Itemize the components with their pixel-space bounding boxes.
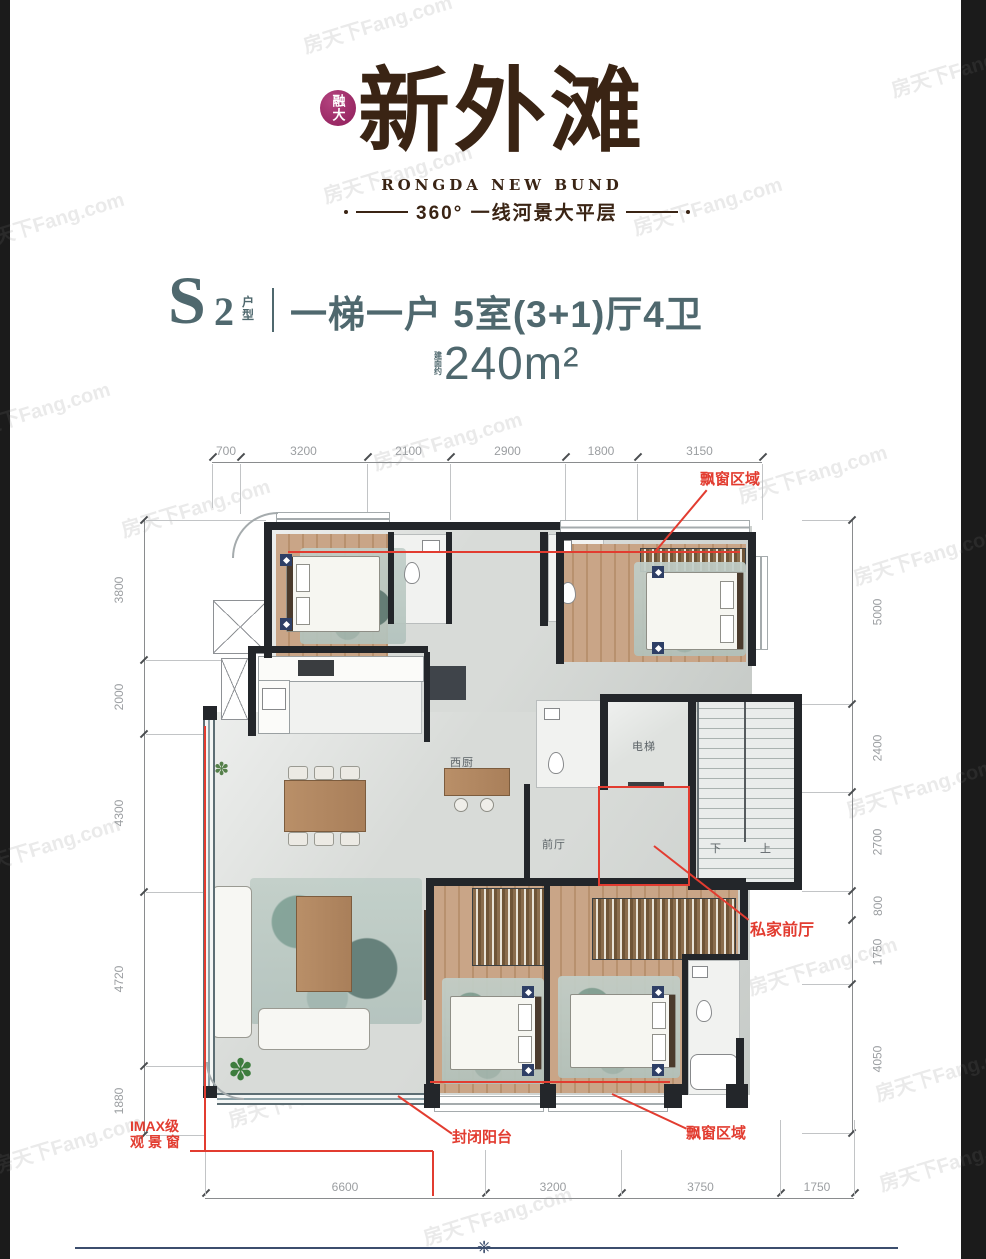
wall-segment — [682, 954, 742, 960]
brand-tagline: 360° 一线河景大平层 — [344, 198, 690, 225]
tagline-bar — [626, 211, 678, 213]
left-black-edge — [0, 0, 10, 1259]
watermark: 房天下Fang.com — [0, 808, 123, 881]
stove — [298, 660, 334, 676]
dim-extension — [450, 464, 451, 520]
dim-segment: 1750 — [852, 920, 869, 984]
wall-segment — [726, 1084, 748, 1108]
dim-extension — [212, 464, 213, 508]
sofa — [258, 1008, 370, 1050]
ac-platform — [221, 658, 249, 720]
column-marker — [280, 554, 292, 566]
column-marker — [280, 618, 292, 630]
wall-segment — [203, 706, 217, 720]
unit-area: 240m² — [444, 336, 579, 390]
dimension-chain-left: 3800 2000 4300 4720 1880 — [128, 520, 145, 1135]
imax-window-label: IMAX级 观景窗 — [130, 1118, 184, 1150]
dim-extension — [854, 1120, 855, 1196]
dim-segment: 3200 — [240, 446, 367, 463]
dining-chair — [288, 832, 308, 846]
tagline-text: 360° 一线河景大平层 — [416, 198, 618, 225]
wall-segment — [556, 532, 754, 540]
dim-extension — [146, 520, 266, 521]
dim-label: 5000 — [871, 599, 885, 626]
stair-down-label: 下 — [710, 840, 722, 856]
bay-window — [434, 1096, 544, 1112]
stairwell — [697, 697, 799, 889]
dim-extension — [762, 464, 763, 520]
dim-segment: 4300 — [128, 734, 145, 892]
dim-label: 6600 — [332, 1180, 359, 1194]
dim-extension — [485, 1150, 486, 1196]
unit-code-label-2: 型 — [242, 309, 254, 322]
wall-segment — [388, 532, 394, 624]
dim-label: 4720 — [112, 966, 126, 993]
wardrobe — [472, 888, 546, 966]
dim-extension — [621, 1150, 622, 1196]
stool — [480, 798, 494, 812]
wall-segment — [424, 1084, 440, 1108]
dim-segment: 3800 — [128, 520, 145, 660]
sofa — [212, 886, 252, 1038]
dim-extension — [802, 1133, 850, 1134]
imax-window-label-2: 观景窗 — [130, 1134, 184, 1150]
enclosed-balcony-label: 封闭阳台 — [452, 1126, 512, 1147]
wall-segment — [540, 532, 548, 626]
dining-chair — [340, 766, 360, 780]
dim-label: 1750 — [871, 939, 885, 966]
dim-label: 3200 — [290, 444, 317, 458]
wall-segment — [748, 532, 756, 666]
dim-label: 2400 — [871, 735, 885, 762]
bed — [646, 572, 744, 650]
dining-chair — [288, 766, 308, 780]
wall-segment — [248, 646, 428, 653]
bed-headboard — [535, 997, 541, 1069]
wall-segment — [540, 1084, 556, 1108]
watermark: 房天下Fang.com — [0, 1106, 145, 1179]
dim-label: 700 — [216, 444, 236, 458]
watermark: 房天下Fang.com — [369, 403, 525, 476]
island-counter — [444, 768, 510, 796]
dimension-chain-top: 700 3200 2100 2900 1800 3150 — [212, 446, 762, 463]
dim-extension — [146, 1066, 204, 1067]
dining-chair — [340, 832, 360, 846]
dim-label: 3150 — [686, 444, 713, 458]
dimension-chain-bottom: 6600 3200 3750 1750 — [205, 1182, 854, 1199]
bed-headboard — [737, 573, 743, 649]
dim-segment: 2700 — [852, 792, 869, 891]
dim-extension — [637, 464, 638, 526]
dim-extension — [802, 704, 850, 705]
tagline-bar — [356, 211, 408, 213]
wall-segment — [664, 1084, 682, 1108]
sink — [692, 966, 708, 978]
dim-segment: 3150 — [637, 446, 762, 463]
watermark: 房天下Fang.com — [0, 183, 127, 256]
unit-code: S — [168, 266, 206, 334]
wall-segment — [264, 522, 560, 530]
dim-segment: 2400 — [852, 704, 869, 792]
dim-label: 800 — [871, 895, 885, 915]
dim-extension — [565, 464, 566, 524]
coffee-table — [296, 896, 352, 992]
dim-segment: 4720 — [128, 892, 145, 1066]
brand-logo-title: 新外滩 — [332, 60, 672, 163]
wall-segment — [446, 532, 452, 624]
dining-chair — [314, 832, 334, 846]
wall-segment — [524, 784, 530, 884]
dim-segment: 2000 — [128, 660, 145, 734]
bay-window-bottom-label: 飘窗区域 — [686, 1122, 746, 1143]
dim-segment: 2900 — [450, 446, 565, 463]
column-marker — [652, 1064, 664, 1076]
kitchen-cabinet — [428, 666, 466, 700]
toilet — [696, 1000, 712, 1022]
dim-extension — [240, 464, 241, 514]
wall-segment — [426, 886, 434, 1095]
wall-segment — [794, 694, 802, 890]
dining-chair — [314, 766, 334, 780]
dim-extension — [802, 984, 850, 985]
imax-window-leader-tick — [432, 1151, 434, 1196]
dim-segment: 5000 — [852, 520, 869, 704]
private-foyer-label: 私家前厅 — [750, 916, 814, 940]
wall-segment — [544, 886, 550, 1095]
bay-window — [754, 556, 768, 650]
brand-logo-subtitle: RONGDA NEW BUND — [332, 176, 672, 194]
tagline-dot — [686, 210, 690, 214]
bed-pillow — [296, 564, 310, 592]
dim-segment: 6600 — [205, 1182, 485, 1199]
dim-segment: 3200 — [485, 1182, 621, 1199]
unit-code-label: 户 型 — [242, 296, 254, 322]
wall-segment — [740, 886, 748, 960]
watermark: 房天下Fang.com — [0, 373, 113, 446]
dim-label: 4050 — [871, 1045, 885, 1072]
bed-pillow — [652, 1034, 666, 1061]
dim-extension — [802, 792, 850, 793]
dim-label: 3800 — [112, 577, 126, 604]
dim-extension — [146, 734, 204, 735]
unit-code-number: 2 — [214, 292, 234, 332]
dim-label: 2100 — [395, 444, 422, 458]
stair-up-label: 上 — [760, 840, 772, 856]
dim-label: 1880 — [112, 1087, 126, 1114]
wall-segment — [248, 652, 256, 736]
wall-segment — [600, 694, 800, 702]
bed — [570, 994, 676, 1068]
dim-label: 1750 — [804, 1180, 831, 1194]
dining-table — [284, 780, 366, 832]
dim-label: 2700 — [871, 828, 885, 855]
dim-label: 2000 — [112, 684, 126, 711]
dim-segment: 1800 — [565, 446, 637, 463]
toilet — [548, 752, 564, 774]
dim-extension — [802, 891, 850, 892]
bay-window-top-line — [288, 551, 740, 553]
floorplan-page: { "brand": { "seal": "融大", "title": "新外滩… — [0, 0, 986, 1259]
dim-extension — [205, 1150, 206, 1196]
dim-label: 2900 — [494, 444, 521, 458]
imax-window-leader — [190, 1150, 433, 1152]
bed-pillow — [652, 1002, 666, 1029]
column-marker — [652, 986, 664, 998]
dim-extension — [146, 892, 204, 893]
dimension-chain-right: 5000 2400 2700 800 1750 4050 — [852, 520, 869, 1133]
bay-window — [548, 1096, 668, 1112]
bed-pillow — [296, 597, 310, 625]
bed — [450, 996, 542, 1070]
dim-label: 1800 — [588, 444, 615, 458]
column-marker — [652, 642, 664, 654]
bed-headboard — [669, 995, 675, 1067]
balcony-window — [217, 1093, 427, 1105]
wall-segment — [424, 652, 430, 742]
dim-extension — [367, 464, 368, 516]
dim-label: 3750 — [687, 1180, 714, 1194]
stool — [454, 798, 468, 812]
stair-divider — [744, 702, 746, 842]
area-prefix: 建 面 约 — [434, 352, 442, 376]
headline-divider — [272, 288, 274, 332]
column-marker — [652, 566, 664, 578]
wardrobe — [592, 898, 736, 960]
elevator-label: 电梯 — [632, 738, 656, 754]
dim-segment: 1750 — [780, 1182, 854, 1199]
foyer-label: 前厅 — [542, 836, 566, 852]
dim-segment: 2100 — [367, 446, 450, 463]
unit-headline: 一梯一户 5室(3+1)厅4卫 — [290, 284, 703, 338]
bed-pillow — [518, 1036, 532, 1063]
wall-segment — [556, 540, 564, 664]
watermark: 房天下Fang.com — [299, 0, 455, 59]
imax-window-line — [204, 726, 206, 1152]
divider-ornament-icon: ❈ — [477, 1238, 491, 1258]
bed-pillow — [720, 615, 734, 643]
dim-label: 4300 — [112, 800, 126, 827]
dim-segment: 3750 — [621, 1182, 780, 1199]
column-marker — [522, 986, 534, 998]
wall-segment — [682, 954, 688, 1095]
bed — [286, 556, 380, 632]
wall-segment — [264, 522, 272, 658]
bed-pillow — [720, 581, 734, 609]
dim-segment: 4050 — [852, 984, 869, 1133]
plant-icon: ✽ — [214, 760, 229, 778]
area-prefix-3: 约 — [434, 368, 442, 376]
private-foyer-box — [598, 786, 690, 886]
dim-extension — [802, 520, 850, 521]
sink — [544, 708, 560, 720]
kitchen-sink — [262, 688, 286, 710]
tagline-dot — [344, 210, 348, 214]
column-marker — [522, 1064, 534, 1076]
dim-extension — [780, 1120, 781, 1196]
dim-label: 3200 — [540, 1180, 567, 1194]
toilet — [404, 562, 420, 584]
imax-window-label-1: IMAX级 — [130, 1118, 184, 1134]
bay-window-bottom-line — [430, 1081, 670, 1083]
kitchen-counter — [258, 656, 424, 682]
wall-segment — [600, 694, 608, 790]
bed-pillow — [518, 1004, 532, 1031]
bay-window-top-label: 飘窗区域 — [700, 468, 760, 489]
